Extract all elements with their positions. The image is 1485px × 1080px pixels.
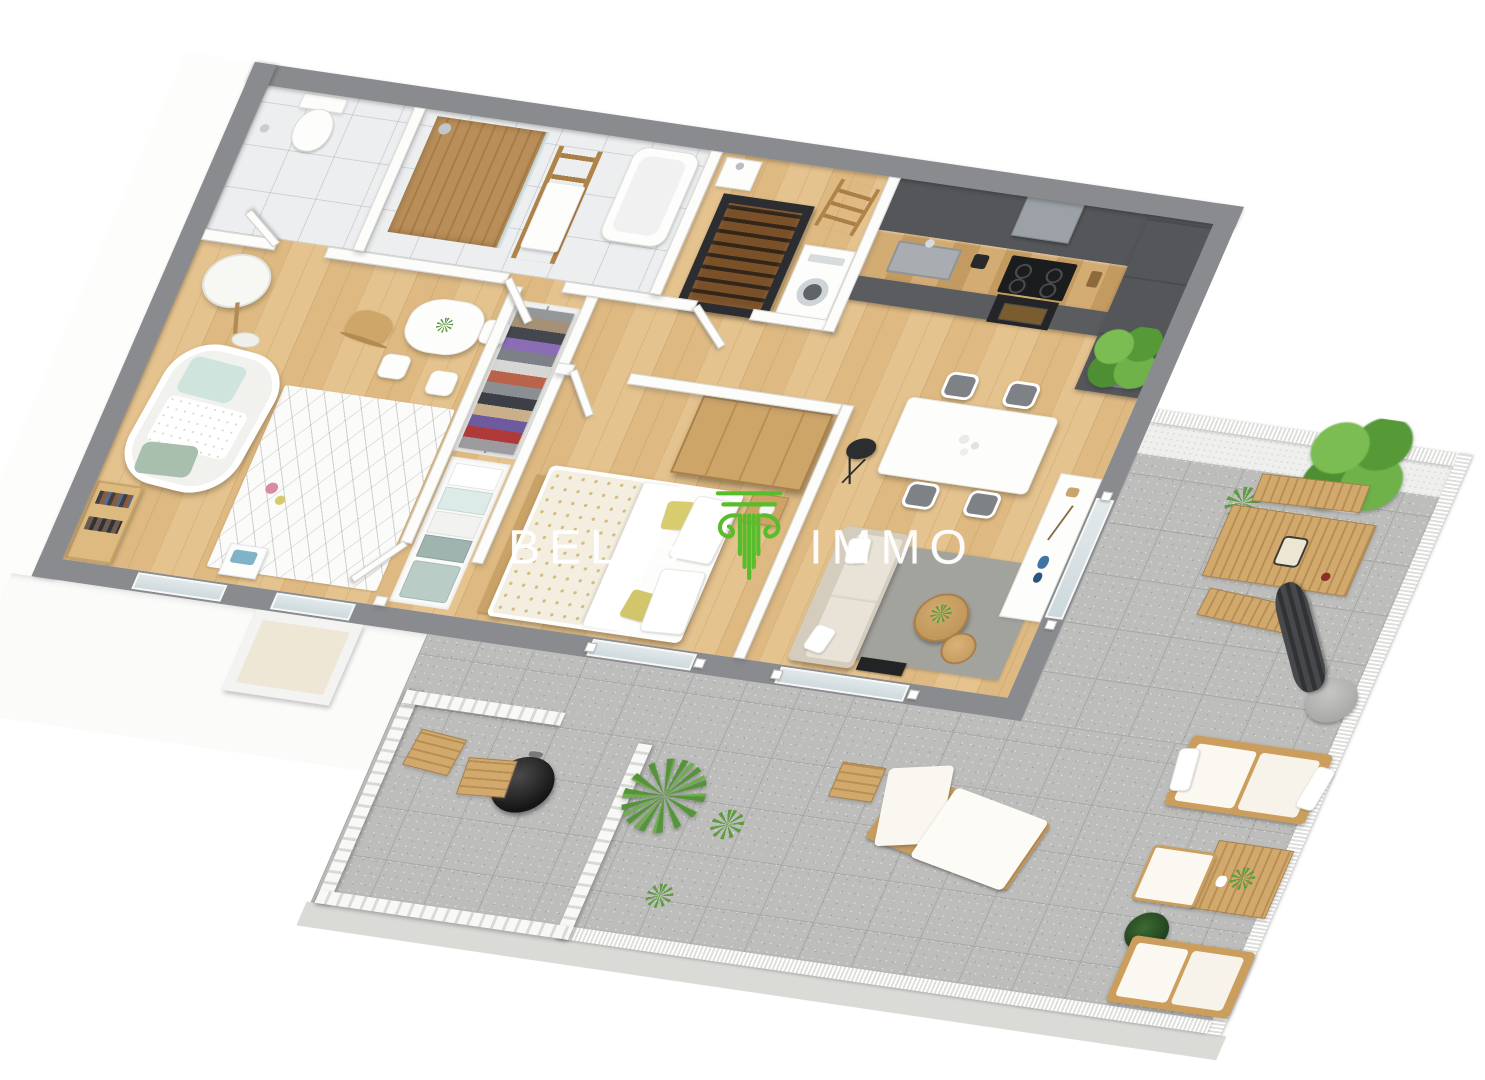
bookshelf-books (84, 516, 123, 534)
table-centerpiece (958, 448, 969, 457)
washing-machine-door (792, 276, 834, 308)
oven-door (997, 303, 1048, 326)
greek-column-icon (703, 482, 795, 599)
crib-cushion-sage (132, 441, 201, 479)
watermark-brand-right: IMMO (809, 521, 976, 576)
hob-burner (1006, 278, 1028, 295)
watermark-brand-left: BELIS (508, 521, 689, 576)
floor-lamp-leg (849, 457, 851, 485)
table-centerpiece (957, 434, 971, 445)
vase-dark-blue (1032, 572, 1044, 583)
hob-burner (1037, 282, 1059, 299)
hob-burner (1043, 267, 1065, 284)
decor-branch (1047, 505, 1074, 540)
decor-deer-figurine (1065, 487, 1081, 498)
floorplan-render: BELIS IMMO (0, 0, 1485, 1080)
hob-burner (1012, 263, 1034, 280)
storage-basket (398, 560, 461, 604)
watermark: BELIS IMMO (508, 498, 976, 599)
table-centerpiece (969, 442, 980, 451)
vase-blue (1036, 555, 1051, 569)
toy-bin-lid (229, 549, 258, 565)
kids-table-plant (434, 317, 456, 334)
washing-machine-panel (807, 254, 846, 267)
folded-linen (416, 534, 473, 563)
bookshelf-books (95, 490, 134, 508)
